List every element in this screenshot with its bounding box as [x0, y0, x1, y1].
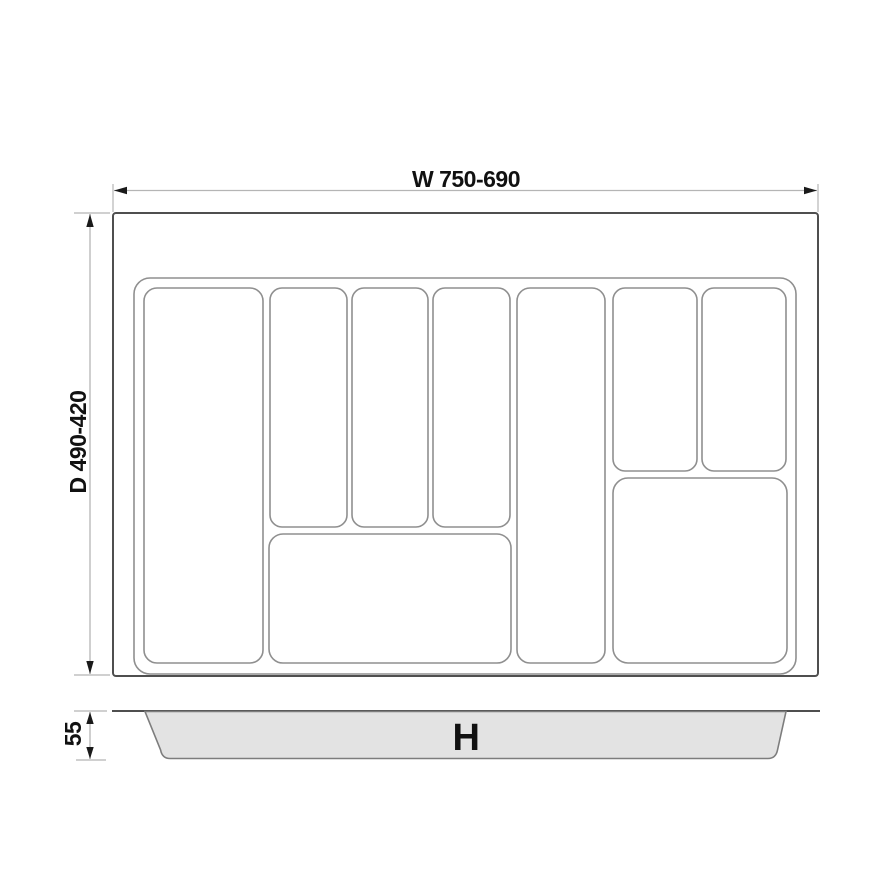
compartment-right-slot-1 — [613, 288, 697, 471]
width-dimension: W 750-690 — [113, 166, 818, 212]
drawer-top-view — [113, 213, 818, 676]
dim-arrow-right — [804, 187, 817, 194]
compartment-slot-3 — [433, 288, 510, 527]
dim-arrow-down — [86, 661, 93, 674]
compartment-slot-1 — [270, 288, 347, 527]
tray-height-label: 55 — [60, 721, 86, 746]
tray-height-dimension: 55 — [60, 711, 107, 760]
width-dimension-label: W 750-690 — [412, 166, 520, 192]
drawer-height-label: H — [453, 717, 480, 759]
depth-dimension: D 490-420 — [65, 213, 110, 675]
dim-arrow-down-small — [86, 747, 93, 759]
dim-arrow-left — [114, 187, 127, 194]
side-profile-view: H — [112, 711, 820, 759]
compartment-right-slot-2 — [702, 288, 786, 471]
cutlery-tray-drawing: W 750-690 D 490-420 — [0, 0, 890, 890]
dim-arrow-up — [86, 214, 93, 227]
compartment-left-tall — [144, 288, 263, 663]
compartment-slot-2 — [352, 288, 428, 527]
compartment-wide-bottom — [269, 534, 511, 663]
depth-dimension-label: D 490-420 — [65, 391, 91, 494]
compartment-center-tall — [517, 288, 605, 663]
dim-arrow-up-small — [86, 712, 93, 724]
technical-drawing-page: W 750-690 D 490-420 — [0, 0, 890, 890]
compartment-right-large — [613, 478, 787, 663]
